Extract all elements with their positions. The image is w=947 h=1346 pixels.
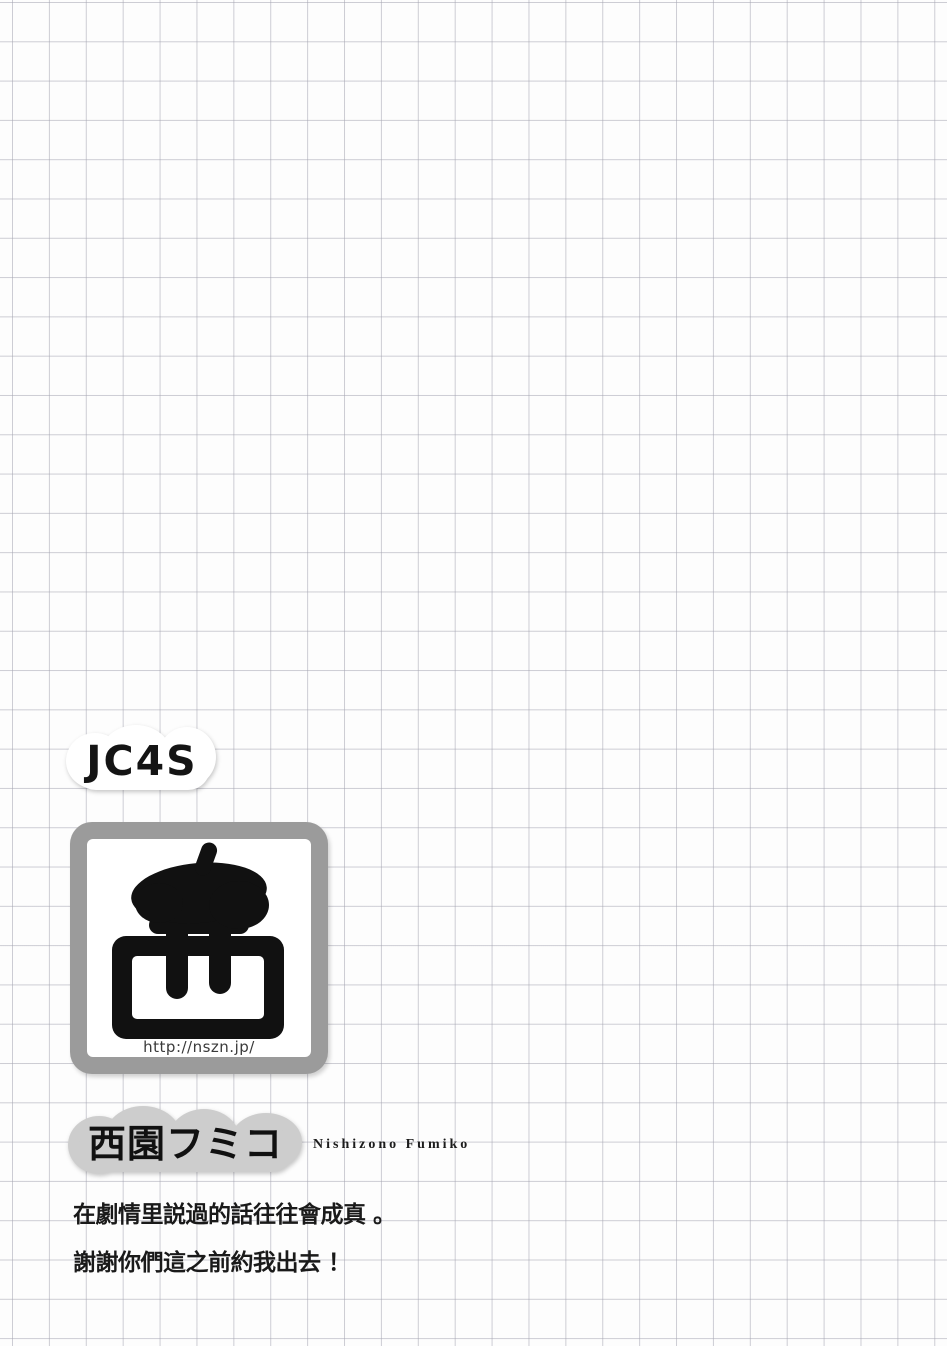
author-logo-frame: http://nszn.jp/	[70, 822, 328, 1074]
afterword-text: 在劇情里説過的話往往會成真 。 謝謝你們這之前約我出去 ！	[73, 1200, 396, 1296]
badge-label: JC4S	[66, 724, 218, 796]
author-name-jp: 西園フミコ	[68, 1104, 303, 1176]
author-name-romaji: Nishizono Fumiko	[313, 1137, 470, 1153]
manga-afterword-page: JC4S http://nszn.jp/	[0, 0, 947, 1346]
jc4s-badge: JC4S	[66, 724, 218, 794]
afterword-line: 在劇情里説過的話往往會成真 。	[73, 1200, 396, 1231]
author-name-badge: 西園フミコ	[68, 1104, 303, 1176]
afterword-line: 謝謝你們這之前約我出去 ！	[73, 1248, 396, 1279]
author-logo: http://nszn.jp/	[87, 839, 311, 1057]
logo-url-text: http://nszn.jp/	[87, 1038, 311, 1056]
beret-artist-glyph-icon	[87, 839, 311, 1057]
